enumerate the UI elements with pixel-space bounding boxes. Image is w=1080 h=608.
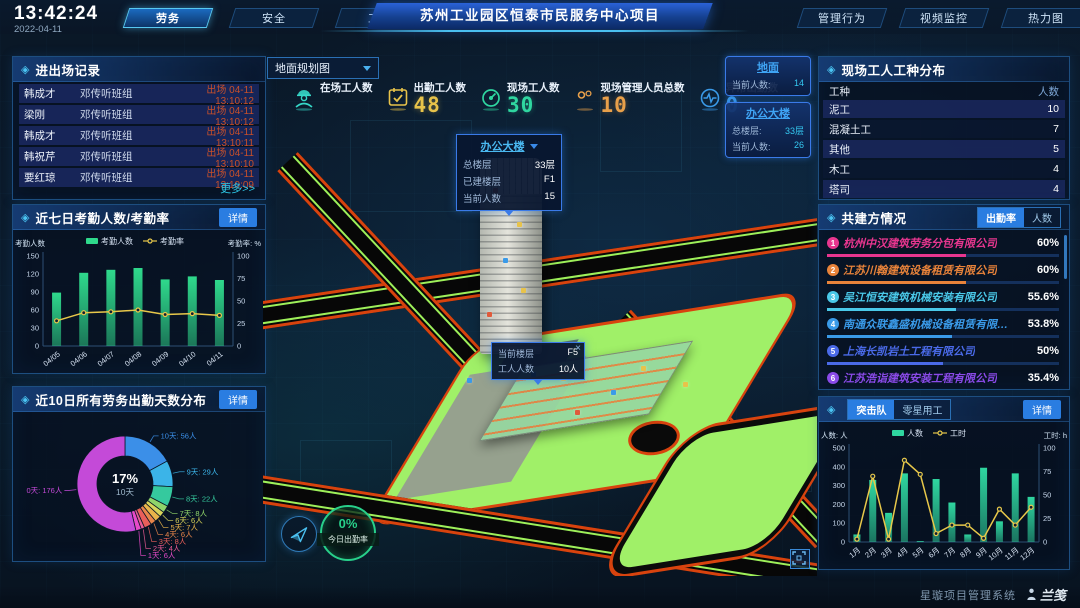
partner-item-top: 3吴江恒安建筑机械安装有限公司55.6%	[827, 289, 1059, 305]
partner-bar-fill	[827, 281, 966, 284]
worker-marker	[611, 390, 616, 395]
svg-text:120: 120	[26, 270, 39, 279]
floor-tooltip: × 当前楼层F5工人人数10人	[491, 342, 585, 380]
calendar-check-icon-wrap	[386, 80, 410, 116]
trade-col-count: 人数	[1038, 84, 1059, 99]
partner-list: 1杭州中汉建筑劳务分包有限公司60%2江苏川翰建筑设备租赁有限公司60%3吴江恒…	[819, 235, 1069, 390]
panel-header: ◈ 现场工人工种分布	[819, 57, 1069, 82]
tooltip-row-value: 10人	[559, 362, 578, 375]
svg-text:60: 60	[31, 306, 39, 315]
trade-row: 木工4	[823, 160, 1065, 178]
trade-count: 4	[1053, 183, 1059, 195]
svg-text:50: 50	[1043, 491, 1051, 500]
entry-name: 韩祝芹	[24, 149, 80, 164]
trade-name: 混凝土工	[829, 122, 1053, 137]
svg-text:25: 25	[1043, 514, 1051, 523]
trade-count: 7	[1053, 123, 1059, 135]
entry-name: 梁刚	[24, 107, 80, 122]
map-view-selector[interactable]: 地面规划图	[267, 57, 379, 79]
svg-text:11月: 11月	[1003, 545, 1021, 562]
footer: 星璇项目管理系统 兰笺	[0, 586, 1080, 608]
tab-management-behavior-label: 管理行为	[818, 10, 866, 26]
zone-cards: 地面当前人数:14办公大楼总楼层:33层当前人数:26	[725, 56, 811, 164]
partner-tab-0[interactable]: 出勤率	[978, 208, 1024, 227]
stat-value: 30	[507, 95, 560, 116]
svg-text:100: 100	[1043, 444, 1056, 453]
brand-logo: 兰笺	[1026, 585, 1066, 604]
partner-name: 南通众联鑫盛机械设备租赁有限公司	[843, 316, 1011, 332]
tab-safety[interactable]: 安全	[229, 8, 319, 28]
map-view-selector-value: 地面规划图	[275, 60, 330, 76]
svg-text:300: 300	[832, 481, 845, 490]
partner-bar-track	[827, 281, 1059, 284]
stat-gauge: 现场工人数30	[479, 80, 560, 116]
attendance-chart: 考勤人数考勤率: %考勤人数考勤率03060901201500255075100…	[13, 230, 263, 372]
svg-text:100: 100	[832, 519, 845, 528]
tooltip-row: 总楼层33层	[463, 157, 555, 171]
svg-text:2月: 2月	[863, 545, 878, 559]
partner-item[interactable]: 2江苏川翰建筑设备租赁有限公司60%	[827, 262, 1059, 284]
fullscreen-icon	[791, 550, 807, 566]
partner-rank-badge: 2	[827, 264, 839, 276]
svg-text:30: 30	[31, 324, 39, 333]
tooltip-row-value: 15	[544, 191, 555, 205]
zone-card-row-value: 14	[794, 78, 804, 91]
logo-person-icon	[1026, 588, 1037, 601]
stat-worker: 在场工人数	[292, 80, 373, 116]
svg-text:50: 50	[237, 297, 245, 306]
zone-card-row-value: 33层	[785, 124, 804, 137]
partner-name: 吴江恒安建筑机械安装有限公司	[843, 289, 997, 305]
svg-text:4月: 4月	[895, 545, 910, 559]
entry-record-row: 韩祝芹邓传听班组出场 04-11 13:10:10	[19, 147, 259, 166]
tooltip-row-value: F1	[544, 174, 555, 188]
nav-tabs-right: 管理行为 视频监控 热力图	[800, 8, 1080, 28]
page-title: 苏州工业园区恒泰市民服务中心项目	[372, 3, 708, 29]
worker-marker	[487, 312, 492, 317]
svg-text:考勤人数: 考勤人数	[15, 238, 45, 248]
svg-text:3月: 3月	[879, 545, 894, 559]
system-name: 星璇项目管理系统	[920, 587, 1016, 603]
project-title-banner: 苏州工业园区恒泰市民服务中心项目	[367, 3, 712, 29]
partner-item-top: 1杭州中汉建筑劳务分包有限公司60%	[827, 235, 1059, 251]
zone-card-row-value: 26	[794, 140, 804, 153]
zone-card-title[interactable]: 办公大楼	[732, 105, 804, 121]
partner-bar-track	[827, 308, 1059, 311]
partner-percent: 53.8%	[1028, 318, 1059, 330]
building-tooltip-title[interactable]: 办公大楼	[481, 138, 525, 154]
more-link[interactable]: 更多>>	[220, 180, 255, 196]
entry-record-row: 韩成才邓传听班组出场 04-11 13:10:12	[19, 84, 259, 103]
stat-text: 现场管理人员总数10	[601, 80, 685, 116]
partner-item-top: 6江苏浩诣建筑安装工程有限公司35.4%	[827, 370, 1059, 386]
trade-name: 塔司	[829, 182, 1053, 197]
svg-text:0: 0	[35, 342, 39, 351]
svg-text:10天: 10天	[116, 487, 134, 497]
entry-group: 邓传听班组	[80, 107, 168, 122]
svg-text:75: 75	[1043, 467, 1051, 476]
zone-card-row: 总楼层:33层	[732, 124, 804, 137]
gauge-value: 0%	[322, 516, 374, 531]
partner-bar-track	[827, 254, 1059, 257]
panel-title: 近七日考勤人数/考勤率	[35, 208, 169, 227]
compass-control[interactable]	[281, 516, 317, 552]
partner-rank-badge: 4	[827, 318, 839, 330]
panel-header: ◈ 近七日考勤人数/考勤率 详情	[13, 205, 265, 230]
partner-item[interactable]: 5上海长凯岩土工程有限公司50%	[827, 343, 1059, 365]
entry-name: 韩成才	[24, 86, 80, 101]
close-icon[interactable]: ×	[575, 343, 581, 354]
partner-tab-group: 出勤率人数	[977, 207, 1061, 228]
squad-chart: 人数: 人工时: h人数工时01002003004005000255075100…	[819, 422, 1069, 568]
footer-right: 星璇项目管理系统 兰笺	[920, 585, 1066, 604]
stat-calendar-check: 出勤工人数48	[386, 80, 467, 116]
svg-text:工时: h: 工时: h	[1044, 430, 1067, 440]
svg-text:考勤率: 考勤率	[160, 236, 184, 246]
stat-value: 10	[601, 95, 685, 116]
panel-partners: ◈ 共建方情况 出勤率人数 1杭州中汉建筑劳务分包有限公司60%2江苏川翰建筑设…	[818, 204, 1070, 390]
partner-bar-fill	[827, 254, 966, 257]
dashboard-root: 13:42:24 2022-04-11 劳务 安全 工期 苏州工业园区恒泰市民服…	[0, 0, 1080, 608]
people-icon-wrap	[573, 80, 597, 116]
gauge-label: 今日出勤率	[317, 533, 379, 546]
time-display: 13:42:24	[14, 5, 98, 23]
panel-squad: ◈ 突击队零星用工 详情 人数: 人工时: h人数工时0100200300400…	[818, 396, 1070, 570]
detail-button[interactable]: 详情	[219, 208, 257, 227]
svg-text:04/06: 04/06	[69, 349, 89, 368]
panel-header: ◈ 进出场记录	[13, 57, 265, 82]
svg-text:1月: 1月	[847, 545, 862, 559]
chevron-down-icon	[363, 66, 371, 71]
chevron-down-icon[interactable]	[530, 144, 538, 149]
gauge-icon	[479, 85, 503, 111]
svg-text:9天: 29人: 9天: 29人	[187, 467, 219, 476]
diamond-icon: ◈	[827, 211, 835, 224]
zone-card-1: 办公大楼总楼层:33层当前人数:26	[725, 102, 811, 158]
zone-card-row-label: 当前人数:	[732, 140, 771, 153]
entry-record-row: 梁刚邓传听班组出场 04-11 13:10:12	[19, 105, 259, 124]
stat-label: 在场工人数	[320, 80, 373, 95]
trade-count: 4	[1053, 163, 1059, 175]
trade-count: 10	[1047, 103, 1059, 115]
worker-marker	[575, 410, 580, 415]
trade-row: 混凝土工7	[823, 120, 1065, 138]
svg-text:75: 75	[237, 274, 245, 283]
partner-item-top: 4南通众联鑫盛机械设备租赁有限公司53.8%	[827, 316, 1059, 332]
detail-button[interactable]: 详情	[1023, 400, 1061, 419]
partner-bar-track	[827, 335, 1059, 338]
fullscreen-button[interactable]	[790, 549, 810, 569]
trade-count: 5	[1053, 143, 1059, 155]
panel-title: 近10日所有劳务出勤天数分布	[35, 390, 206, 409]
diamond-icon: ◈	[21, 63, 29, 76]
entry-record-row: 韩成才邓传听班组出场 04-11 13:10:11	[19, 126, 259, 145]
zone-card-row: 当前人数:14	[732, 78, 804, 91]
svg-text:8天: 22人: 8天: 22人	[186, 494, 218, 503]
entry-group: 邓传听班组	[80, 128, 168, 143]
svg-text:04/07: 04/07	[96, 349, 116, 368]
squad-tab-group: 突击队零星用工	[847, 399, 951, 420]
logo-text: 兰笺	[1040, 585, 1066, 604]
partner-item[interactable]: 1杭州中汉建筑劳务分包有限公司60%	[827, 235, 1059, 257]
tab-labor[interactable]: 劳务	[123, 8, 213, 28]
entry-group: 邓传听班组	[80, 170, 168, 185]
svg-text:9月: 9月	[974, 545, 989, 559]
trade-name: 木工	[829, 162, 1053, 177]
trade-name: 泥工	[829, 102, 1047, 117]
panel-title: 进出场记录	[35, 60, 100, 79]
building-tooltip: 办公大楼 总楼层33层已建楼层F1当前人数15	[456, 134, 562, 211]
partner-tab-1[interactable]: 人数	[1024, 208, 1060, 227]
floor-tooltip-rows: 当前楼层F5工人人数10人	[498, 347, 578, 375]
svg-text:04/08: 04/08	[123, 349, 143, 368]
svg-text:7月: 7月	[942, 545, 957, 559]
partner-bar-fill	[827, 308, 956, 311]
diamond-icon: ◈	[827, 63, 835, 76]
partner-rank-badge: 5	[827, 345, 839, 357]
today-attendance-gauge: 0% 今日出勤率	[320, 505, 376, 561]
partner-rank-badge: 6	[827, 372, 839, 384]
worker-marker	[641, 366, 646, 371]
panel-title: 现场工人工种分布	[841, 60, 945, 79]
tab-video-monitor-label: 视频监控	[920, 10, 968, 26]
svg-text:100: 100	[237, 252, 250, 261]
partner-name: 江苏川翰建筑设备租赁有限公司	[843, 262, 997, 278]
partner-bar-track	[827, 362, 1059, 365]
date-display: 2022-04-11	[14, 24, 98, 35]
panel-title: 共建方情况	[841, 208, 906, 227]
svg-text:6月: 6月	[927, 545, 942, 559]
worker-marker	[521, 288, 526, 293]
diamond-icon: ◈	[21, 211, 29, 224]
tab-management-behavior[interactable]: 管理行为	[797, 8, 887, 28]
tooltip-row: 当前人数15	[463, 191, 555, 205]
entry-group: 邓传听班组	[80, 149, 168, 164]
squad-tab-1[interactable]: 零星用工	[894, 400, 950, 419]
partner-percent: 60%	[1037, 237, 1059, 249]
svg-text:人数: 人数	[907, 428, 923, 438]
svg-text:8月: 8月	[958, 545, 973, 559]
entry-name: 韩成才	[24, 128, 80, 143]
pulse-icon-wrap	[698, 80, 722, 116]
people-icon	[573, 85, 597, 111]
partner-percent: 50%	[1037, 345, 1059, 357]
tooltip-row-value: 33层	[535, 157, 555, 171]
stats-row: 在场工人数出勤工人数48现场工人数30现场管理人员总数10异常出勤数0	[292, 80, 752, 116]
building-tooltip-header: 办公大楼	[463, 138, 555, 154]
partner-bar-fill	[827, 335, 952, 338]
svg-text:150: 150	[26, 252, 39, 261]
svg-text:500: 500	[832, 444, 845, 453]
svg-text:考勤率: %: 考勤率: %	[228, 238, 262, 248]
svg-text:400: 400	[832, 462, 845, 471]
trade-table-header: 工种 人数	[819, 82, 1069, 100]
entry-records-list: 韩成才邓传听班组出场 04-11 13:10:12梁刚邓传听班组出场 04-11…	[13, 84, 265, 187]
partner-bar-track	[827, 389, 1059, 390]
stat-text: 现场工人数30	[507, 80, 560, 116]
pulse-icon	[698, 85, 722, 111]
svg-text:90: 90	[31, 288, 39, 297]
diamond-icon: ◈	[827, 403, 835, 416]
svg-text:25: 25	[237, 319, 245, 328]
svg-text:04/05: 04/05	[41, 349, 61, 368]
svg-text:10天: 56人: 10天: 56人	[161, 431, 197, 440]
svg-text:12月: 12月	[1018, 545, 1036, 562]
squad-tab-0[interactable]: 突击队	[848, 400, 894, 419]
tab-labor-label: 劳务	[156, 10, 180, 26]
zone-card-row: 当前人数:26	[732, 140, 804, 153]
trade-table-body: 泥工10混凝土工7其他5木工4塔司4	[819, 100, 1069, 198]
tab-heatmap[interactable]: 热力图	[1001, 8, 1080, 28]
svg-text:0: 0	[1043, 538, 1047, 547]
trade-col-type: 工种	[829, 84, 1038, 99]
partner-item[interactable]: 4南通众联鑫盛机械设备租赁有限公司53.8%	[827, 316, 1059, 338]
building-tooltip-rows: 总楼层33层已建楼层F1当前人数15	[463, 157, 555, 205]
partner-percent: 35.4%	[1028, 372, 1059, 384]
tab-safety-label: 安全	[262, 10, 286, 26]
svg-text:04/10: 04/10	[177, 349, 197, 368]
partner-item[interactable]: 6江苏浩诣建筑安装工程有限公司35.4%	[827, 370, 1059, 390]
partner-name: 杭州中汉建筑劳务分包有限公司	[843, 235, 997, 251]
worker-icon-wrap	[292, 80, 316, 116]
tab-heatmap-label: 热力图	[1028, 10, 1064, 26]
svg-text:人数: 人: 人数: 人	[821, 430, 848, 440]
partner-rank-badge: 3	[827, 291, 839, 303]
calendar-check-icon	[386, 85, 410, 111]
stat-text: 出勤工人数48	[414, 80, 467, 116]
svg-text:考勤人数: 考勤人数	[101, 236, 133, 246]
tooltip-row-label: 当前楼层	[498, 347, 534, 360]
tooltip-row: 已建楼层F1	[463, 174, 555, 188]
svg-text:04/11: 04/11	[205, 349, 225, 367]
svg-text:工时: 工时	[950, 428, 966, 438]
panel-header: ◈ 共建方情况 出勤率人数	[819, 205, 1069, 230]
attendance-days-donut: 10天: 56人9天: 29人8天: 22人7天: 8人6天: 6人5天: 7人…	[13, 412, 263, 562]
svg-text:17%: 17%	[112, 471, 138, 486]
tab-video-monitor[interactable]: 视频监控	[899, 8, 989, 28]
svg-text:10月: 10月	[987, 545, 1005, 562]
trade-row: 泥工10	[823, 100, 1065, 118]
stat-people: 现场管理人员总数10	[573, 80, 685, 116]
partner-bar-fill	[827, 362, 943, 365]
svg-text:1天: 6人: 1天: 6人	[148, 551, 176, 560]
svg-text:200: 200	[832, 500, 845, 509]
worker-marker	[683, 382, 688, 387]
detail-button[interactable]: 详情	[219, 390, 257, 409]
worker-marker	[467, 378, 472, 383]
top-bar: 13:42:24 2022-04-11 劳务 安全 工期 苏州工业园区恒泰市民服…	[0, 0, 1080, 34]
partner-item[interactable]: 3吴江恒安建筑机械安装有限公司55.6%	[827, 289, 1059, 311]
panel-header: ◈ 近10日所有劳务出勤天数分布 详情	[13, 387, 265, 412]
zone-card-row-label: 总楼层:	[732, 124, 762, 137]
svg-text:04/09: 04/09	[150, 349, 170, 368]
zone-card-row-label: 当前人数:	[732, 78, 771, 91]
partner-item-top: 5上海长凯岩土工程有限公司50%	[827, 343, 1059, 359]
tooltip-row-label: 已建楼层	[463, 174, 501, 188]
tooltip-row-label: 工人人数	[498, 362, 534, 375]
entry-name: 要红琼	[24, 170, 80, 185]
tooltip-row: 工人人数10人	[498, 362, 578, 375]
zone-card-0: 地面当前人数:14	[725, 56, 811, 96]
svg-text:5月: 5月	[911, 545, 926, 559]
tooltip-row-label: 总楼层	[463, 157, 492, 171]
panel-worker-trades: ◈ 现场工人工种分布 工种 人数 泥工10混凝土工7其他5木工4塔司4	[818, 56, 1070, 200]
entry-group: 邓传听班组	[80, 86, 168, 101]
worker-icon	[292, 85, 316, 111]
tooltip-row: 当前楼层F5	[498, 347, 578, 360]
navigation-arrow-icon	[288, 523, 310, 545]
partner-bar-fill	[827, 389, 909, 390]
partner-name: 上海长凯岩土工程有限公司	[843, 343, 975, 359]
panel-header: ◈ 突击队零星用工 详情	[819, 397, 1069, 422]
partner-item-top: 2江苏川翰建筑设备租赁有限公司60%	[827, 262, 1059, 278]
diamond-icon: ◈	[21, 393, 29, 406]
tooltip-row-label: 当前人数	[463, 191, 501, 205]
clock: 13:42:24 2022-04-11	[14, 5, 98, 35]
trade-row: 塔司4	[823, 180, 1065, 198]
trade-row: 其他5	[823, 140, 1065, 158]
stat-value: 48	[414, 95, 467, 116]
worker-marker	[503, 258, 508, 263]
panel-entry-exit-records: ◈ 进出场记录 韩成才邓传听班组出场 04-11 13:10:12梁刚邓传听班组…	[12, 56, 266, 200]
zone-card-title[interactable]: 地面	[732, 59, 804, 75]
stat-text: 在场工人数	[320, 80, 373, 95]
svg-text:0: 0	[841, 538, 845, 547]
partner-name: 江苏浩诣建筑安装工程有限公司	[843, 370, 997, 386]
scrollbar-thumb[interactable]	[1064, 235, 1067, 279]
trade-name: 其他	[829, 142, 1053, 157]
panel-attendance-days-distribution: ◈ 近10日所有劳务出勤天数分布 详情 10天: 56人9天: 29人8天: 2…	[12, 386, 266, 562]
panel-weekly-attendance: ◈ 近七日考勤人数/考勤率 详情 考勤人数考勤率: %考勤人数考勤率030609…	[12, 204, 266, 374]
svg-text:0: 0	[237, 342, 241, 351]
partner-percent: 55.6%	[1028, 291, 1059, 303]
worker-marker	[517, 222, 522, 227]
svg-text:0天: 176人: 0天: 176人	[27, 486, 63, 495]
partner-rank-badge: 1	[827, 237, 839, 249]
gauge-icon-wrap	[479, 80, 503, 116]
partner-percent: 60%	[1037, 264, 1059, 276]
